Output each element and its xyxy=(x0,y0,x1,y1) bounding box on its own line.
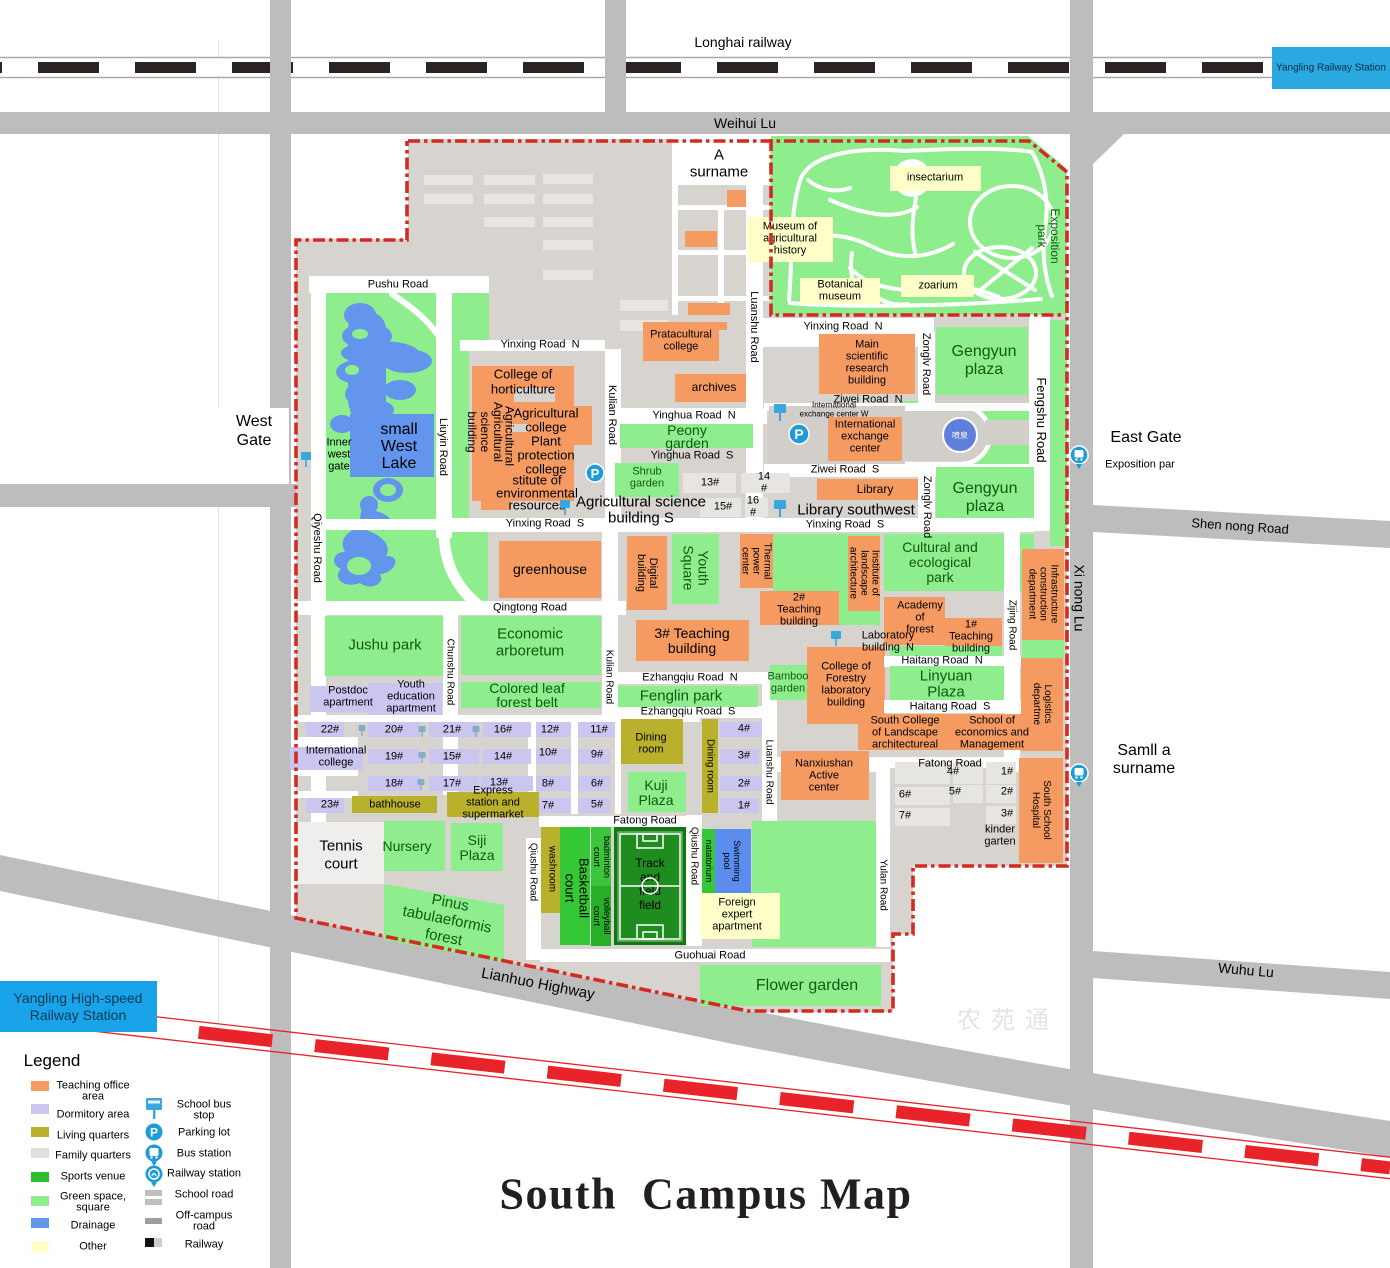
svg-text:喷泉: 喷泉 xyxy=(952,430,968,440)
